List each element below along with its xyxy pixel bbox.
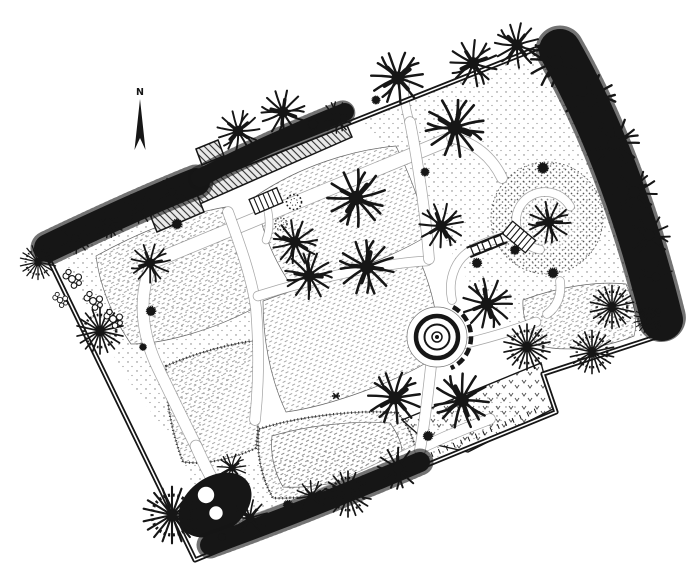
shrub (284, 501, 293, 510)
shrub (372, 96, 380, 104)
north-label: N (136, 87, 144, 98)
north-compass: N (135, 87, 146, 150)
north-arrow-icon (135, 99, 146, 150)
fountain-ring (435, 335, 439, 339)
garden-site-plan-drawing: N (0, 0, 691, 579)
shrub (308, 119, 318, 129)
walkway (266, 207, 269, 240)
shrub (548, 268, 557, 277)
shrub (140, 344, 147, 351)
round-shrub (209, 506, 224, 521)
shrub (421, 168, 429, 176)
shrub (147, 307, 156, 316)
shrub (538, 163, 548, 173)
round-shrub (197, 486, 215, 504)
plan-canvas: N (0, 0, 691, 579)
shrub (424, 432, 433, 441)
shrub (473, 259, 482, 268)
shrub (172, 219, 181, 228)
shrub (218, 533, 226, 541)
